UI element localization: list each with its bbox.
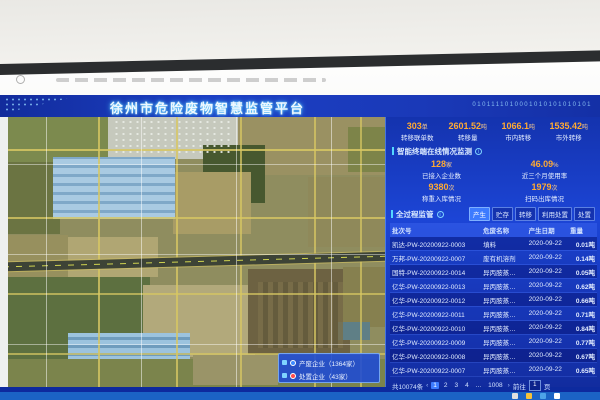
legend-label: 产废企业（1364家） bbox=[299, 358, 359, 368]
screen-photo: 徐州市危险废物智慧监管平台 0101111010001010101010101 … bbox=[0, 0, 600, 400]
page-...[interactable]: ... bbox=[474, 382, 483, 389]
cell-weight: 0.01吨 bbox=[568, 237, 597, 251]
address-bar[interactable] bbox=[56, 78, 326, 82]
cell-batch: 凯达-PW-20200922-0003 bbox=[390, 237, 481, 251]
dots-decoration bbox=[4, 97, 74, 113]
table-row[interactable]: 国特-PW-20200922-0014异丙胺蒸…2020-09-220.05吨 bbox=[390, 265, 597, 279]
cell-batch: 亿华-PW-20200922-0009 bbox=[390, 335, 481, 349]
page-margin bbox=[0, 117, 8, 387]
stat-value: 46.09% bbox=[493, 159, 596, 169]
table-row[interactable]: 亿华-PW-20200922-0013异丙胺蒸…2020-09-220.62吨 bbox=[390, 279, 597, 293]
stat-value: 2601.52吨 bbox=[443, 121, 494, 131]
terminal-section-title: 智能终端在线情况监测 bbox=[397, 146, 472, 157]
cell-date: 2020-09-22 bbox=[527, 321, 568, 335]
taskbar-icon[interactable] bbox=[554, 393, 560, 399]
page-2[interactable]: 2 bbox=[442, 382, 450, 389]
goto-label: 前往 bbox=[513, 381, 526, 391]
cell-date: 2020-09-22 bbox=[527, 335, 568, 349]
cell-name: 填料 bbox=[481, 237, 527, 251]
cell-date: 2020-09-22 bbox=[527, 251, 568, 265]
process-section-header: 全过程监管 i 产生贮存转移利用处置处置 bbox=[386, 207, 600, 221]
stat-label: 近三个月使用率 bbox=[493, 170, 596, 180]
table-row[interactable]: 亿华-PW-20200922-0012异丙胺蒸…2020-09-220.66吨 bbox=[390, 293, 597, 307]
section-accent-bar bbox=[391, 210, 393, 218]
info-icon[interactable]: i bbox=[475, 148, 482, 155]
map-gridline bbox=[46, 117, 47, 387]
stat-unit: 次 bbox=[552, 186, 558, 192]
terminal-stat: 9380次称重入库情况 bbox=[390, 182, 493, 203]
table-body: 凯达-PW-20200922-0003填料2020-09-220.01吨万邦-P… bbox=[390, 237, 597, 377]
page-unit-label: 页 bbox=[544, 381, 551, 391]
marker-icon bbox=[290, 360, 296, 366]
stat-unit: 次 bbox=[449, 186, 455, 192]
cell-date: 2020-09-22 bbox=[527, 307, 568, 321]
column-header: 重量 bbox=[568, 223, 597, 237]
terminal-stat: 1979次扫码出库情况 bbox=[493, 182, 596, 203]
marker-icon bbox=[290, 373, 296, 379]
info-icon[interactable]: i bbox=[437, 211, 444, 218]
cell-name: 异丙胺蒸… bbox=[481, 293, 527, 307]
table-row[interactable]: 亿华-PW-20200922-0009异丙胺蒸…2020-09-220.77吨 bbox=[390, 335, 597, 349]
cell-weight: 0.71吨 bbox=[568, 307, 597, 321]
page-1[interactable]: 1 bbox=[431, 382, 439, 389]
cell-batch: 国特-PW-20200922-0014 bbox=[390, 265, 481, 279]
table-row[interactable]: 凯达-PW-20200922-0003填料2020-09-220.01吨 bbox=[390, 237, 597, 251]
map-gridline bbox=[8, 164, 385, 165]
column-header: 危废名称 bbox=[481, 223, 527, 237]
next-page-button[interactable]: › bbox=[508, 382, 510, 389]
cell-date: 2020-09-22 bbox=[527, 279, 568, 293]
transfer-stat: 303单转移联单数 bbox=[392, 121, 443, 142]
stat-value: 9380次 bbox=[390, 182, 493, 192]
cell-weight: 0.05吨 bbox=[568, 265, 597, 279]
cell-date: 2020-09-22 bbox=[527, 237, 568, 251]
transfer-stat: 1066.1吨市内转移 bbox=[493, 121, 544, 142]
cell-name: 异丙胺蒸… bbox=[481, 279, 527, 293]
terminal-stats: 128家已接入企业数46.09%近三个月使用率9380次称重入库情况1979次扫… bbox=[386, 157, 600, 205]
pager-total: 共10074条 bbox=[392, 381, 423, 391]
stat-unit: % bbox=[553, 163, 558, 169]
map-road bbox=[8, 293, 385, 295]
map-terrain-patch bbox=[8, 235, 68, 280]
goto-page-input[interactable]: 1 bbox=[529, 380, 541, 391]
map-road bbox=[314, 117, 316, 387]
map-terrain-patch bbox=[68, 237, 158, 277]
page-3[interactable]: 3 bbox=[453, 382, 461, 389]
map-road bbox=[8, 149, 385, 151]
stat-unit: 吨 bbox=[481, 125, 487, 131]
stat-label: 转移联单数 bbox=[392, 132, 443, 142]
map-road bbox=[240, 117, 242, 387]
stat-label: 已接入企业数 bbox=[390, 170, 493, 180]
cell-name: 异丙胺蒸… bbox=[481, 363, 527, 377]
stat-unit: 吨 bbox=[582, 125, 588, 131]
terminal-stat: 128家已接入企业数 bbox=[390, 159, 493, 180]
terminal-section-header: 智能终端在线情况监测 i bbox=[386, 145, 600, 157]
stat-value: 303单 bbox=[392, 121, 443, 131]
cell-batch: 亿华-PW-20200922-0008 bbox=[390, 349, 481, 363]
app-header: 徐州市危险废物智慧监管平台 0101111010001010101010101 bbox=[0, 95, 600, 118]
cell-weight: 0.65吨 bbox=[568, 363, 597, 377]
reload-icon[interactable] bbox=[16, 75, 25, 84]
cell-weight: 0.77吨 bbox=[568, 335, 597, 349]
map-gridline bbox=[236, 117, 237, 387]
map-road bbox=[98, 117, 100, 387]
table-header-row: 批次号危废名称产生日期重量 bbox=[390, 223, 597, 237]
tab-处置[interactable]: 处置 bbox=[574, 207, 595, 221]
cell-batch: 亿华-PW-20200922-0013 bbox=[390, 279, 481, 293]
column-header: 批次号 bbox=[390, 223, 481, 237]
stat-label: 称重入库情况 bbox=[390, 193, 493, 203]
map-terrain-patch bbox=[343, 267, 385, 327]
cell-name: 异丙胺蒸… bbox=[481, 265, 527, 279]
process-tabs: 产生贮存转移利用处置处置 bbox=[469, 207, 595, 221]
cell-name: 异丙胺蒸… bbox=[481, 307, 527, 321]
map-terrain-patch bbox=[308, 177, 385, 247]
table-row[interactable]: 亿华-PW-20200922-0011异丙胺蒸…2020-09-220.71吨 bbox=[390, 307, 597, 321]
terminal-stat: 46.09%近三个月使用率 bbox=[493, 159, 596, 180]
section-accent-bar bbox=[392, 147, 394, 155]
stat-unit: 家 bbox=[446, 163, 452, 169]
cell-weight: 0.62吨 bbox=[568, 279, 597, 293]
process-section-title: 全过程监管 bbox=[396, 209, 434, 220]
windows-taskbar[interactable] bbox=[0, 392, 600, 400]
cell-date: 2020-09-22 bbox=[527, 349, 568, 363]
cell-weight: 0.66吨 bbox=[568, 293, 597, 307]
map-road bbox=[176, 117, 178, 387]
tab-利用处置[interactable]: 利用处置 bbox=[538, 207, 572, 221]
cell-date: 2020-09-22 bbox=[527, 293, 568, 307]
column-header: 产生日期 bbox=[527, 223, 568, 237]
cell-name: 异丙胺蒸… bbox=[481, 321, 527, 335]
map-gridline bbox=[8, 254, 385, 255]
cell-weight: 0.67吨 bbox=[568, 349, 597, 363]
cell-name: 异丙胺蒸… bbox=[481, 349, 527, 363]
prev-page-button[interactable]: ‹ bbox=[426, 382, 428, 389]
cell-batch: 亿华-PW-20200922-0012 bbox=[390, 293, 481, 307]
transfer-stat: 2601.52吨转移量 bbox=[443, 121, 494, 142]
table-row[interactable]: 亿华-PW-20200922-0007异丙胺蒸…2020-09-220.65吨 bbox=[390, 363, 597, 377]
cell-batch: 万邦-PW-20200922-0007 bbox=[390, 251, 481, 265]
cell-date: 2020-09-22 bbox=[527, 363, 568, 377]
stat-label: 市外转移 bbox=[544, 132, 595, 142]
cell-name: 异丙胺蒸… bbox=[481, 335, 527, 349]
right-panel: 303单转移联单数2601.52吨转移量1066.1吨市内转移1535.42吨市… bbox=[385, 117, 600, 387]
legend-item[interactable]: 产废企业（1364家） bbox=[282, 356, 376, 369]
transfer-stat: 1535.42吨市外转移 bbox=[544, 121, 595, 142]
taskbar-icon[interactable] bbox=[526, 393, 532, 399]
checkbox-icon[interactable] bbox=[282, 373, 287, 378]
taskbar-icon[interactable] bbox=[512, 393, 518, 399]
stat-label: 扫码出库情况 bbox=[493, 193, 596, 203]
legend-item[interactable]: 处置企业（43家） bbox=[282, 369, 376, 382]
legend-label: 处置企业（43家） bbox=[299, 371, 352, 381]
stat-value: 1535.42吨 bbox=[544, 121, 595, 131]
tab-转移[interactable]: 转移 bbox=[515, 207, 536, 221]
cell-batch: 亿华-PW-20200922-0007 bbox=[390, 363, 481, 377]
cell-batch: 亿华-PW-20200922-0011 bbox=[390, 307, 481, 321]
page-1008[interactable]: 1008 bbox=[486, 382, 504, 389]
stat-value: 1066.1吨 bbox=[493, 121, 544, 131]
stat-value: 128家 bbox=[390, 159, 493, 169]
cell-name: 废有机溶剂 bbox=[481, 251, 527, 265]
page-4[interactable]: 4 bbox=[463, 382, 471, 389]
dashboard-app: 徐州市危险废物智慧监管平台 0101111010001010101010101 … bbox=[0, 95, 600, 392]
table-row[interactable]: 亿华-PW-20200922-0008异丙胺蒸…2020-09-220.67吨 bbox=[390, 349, 597, 363]
transfer-stats: 303单转移联单数2601.52吨转移量1066.1吨市内转移1535.42吨市… bbox=[386, 117, 600, 142]
cell-weight: 0.14吨 bbox=[568, 251, 597, 265]
stat-unit: 单 bbox=[422, 125, 428, 131]
map-gridline bbox=[141, 117, 142, 387]
map-legend: 产废企业（1364家）处置企业（43家） bbox=[278, 353, 380, 383]
map-gridline bbox=[8, 344, 385, 345]
table-row[interactable]: 亿华-PW-20200922-0010异丙胺蒸…2020-09-220.84吨 bbox=[390, 321, 597, 335]
cell-batch: 亿华-PW-20200922-0010 bbox=[390, 321, 481, 335]
map-road bbox=[8, 217, 385, 219]
page-title: 徐州市危险废物智慧监管平台 bbox=[110, 98, 305, 117]
cell-weight: 0.84吨 bbox=[568, 321, 597, 335]
map-terrain-patch bbox=[53, 157, 175, 219]
table-row[interactable]: 万邦-PW-20200922-0007废有机溶剂2020-09-220.14吨 bbox=[390, 251, 597, 265]
map-gridline bbox=[331, 117, 332, 387]
stat-unit: 吨 bbox=[529, 125, 535, 131]
tab-贮存[interactable]: 贮存 bbox=[492, 207, 513, 221]
tab-产生[interactable]: 产生 bbox=[469, 207, 490, 221]
binary-decoration: 0101111010001010101010101 bbox=[472, 102, 592, 108]
waste-batch-table: 批次号危废名称产生日期重量 凯达-PW-20200922-0003填料2020-… bbox=[390, 223, 597, 377]
cell-date: 2020-09-22 bbox=[527, 265, 568, 279]
checkbox-icon[interactable] bbox=[282, 360, 287, 365]
stat-label: 市内转移 bbox=[493, 132, 544, 142]
stat-label: 转移量 bbox=[443, 132, 494, 142]
taskbar-icon[interactable] bbox=[540, 393, 546, 399]
stat-value: 1979次 bbox=[493, 182, 596, 192]
taskbar-icons bbox=[512, 393, 560, 399]
satellite-map[interactable]: 产废企业（1364家）处置企业（43家） bbox=[8, 117, 385, 387]
